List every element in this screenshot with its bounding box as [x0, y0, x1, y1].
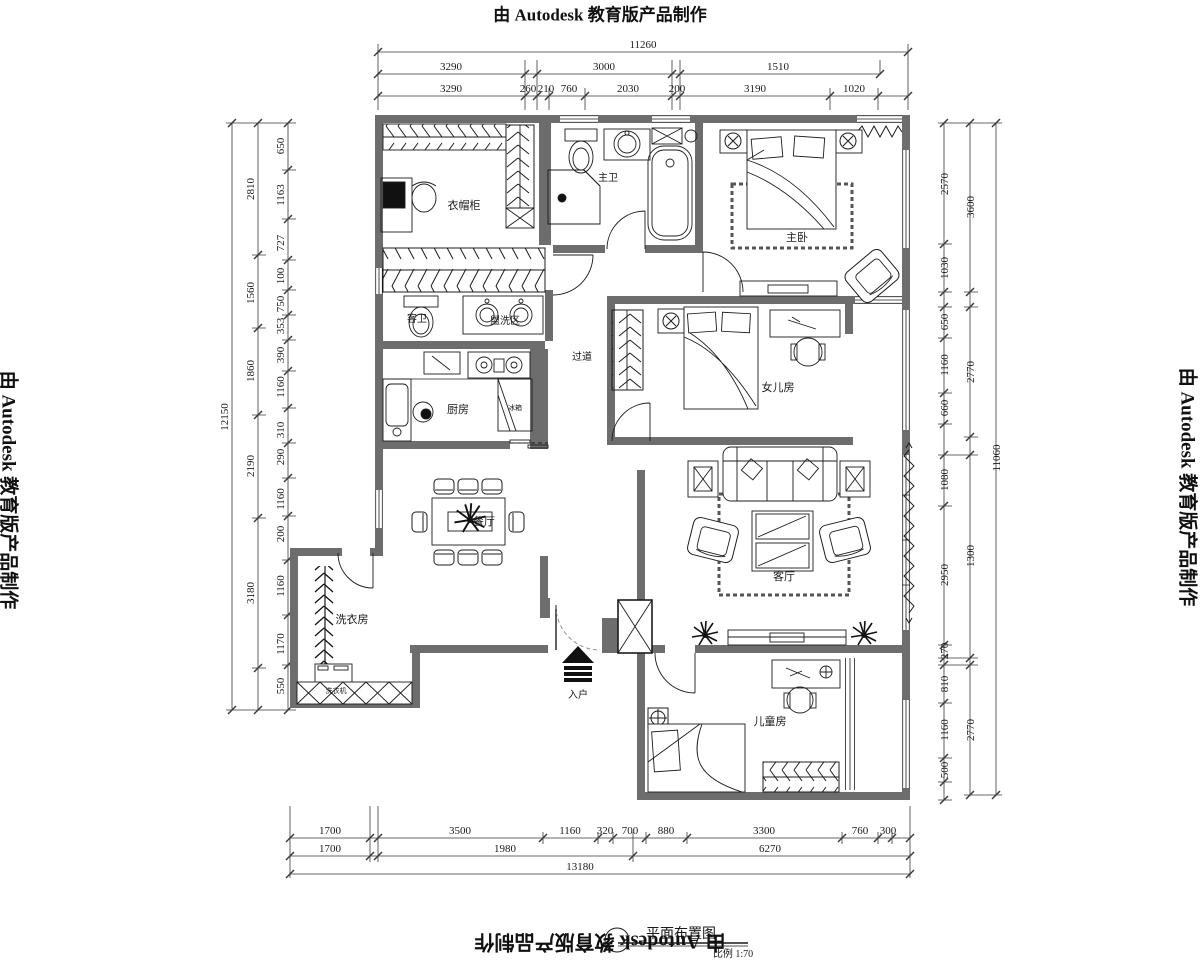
laundry-fixtures: [297, 566, 412, 704]
dim-label: 2810: [245, 178, 257, 201]
dim-label: 550: [275, 677, 287, 694]
dim-label: 650: [275, 137, 287, 154]
dimension-labels: 11260 3290 3000 1510 3290 260 210 760 20…: [219, 39, 1003, 873]
dim-label: 1980: [494, 843, 517, 855]
dim-label: 1080: [939, 469, 951, 492]
living-room-furniture: [686, 447, 877, 645]
dim-label: 100: [275, 267, 287, 284]
dim-label: 12150: [219, 403, 231, 431]
kitchen-fixtures: [383, 352, 532, 441]
corridor-label: 过道: [572, 350, 592, 363]
dim-label: 2190: [245, 455, 257, 478]
kitchen-label: 厨房: [447, 403, 469, 416]
fridge-label: 冰箱: [508, 403, 522, 412]
dim-label: 310: [275, 421, 287, 438]
dim-label: 1860: [245, 360, 257, 383]
dim-label: 750: [275, 295, 287, 312]
dim-label: 2570: [939, 173, 951, 196]
dim-label: 1160: [275, 488, 287, 510]
dim-label: 200: [669, 83, 686, 95]
dim-label: 3180: [245, 582, 257, 605]
dim-label: 270: [939, 642, 951, 659]
dim-label: 1030: [939, 257, 951, 280]
kids-room-label: 儿童房: [754, 714, 787, 728]
autodesk-watermark-bottom: 由 Autodesk 教育版产品制作: [474, 930, 725, 959]
dim-label: 290: [275, 448, 287, 465]
master-bedroom-furniture: [720, 130, 902, 305]
master-bedroom-label: 主卧: [786, 231, 808, 244]
dim-label: 210: [538, 83, 555, 95]
floor-plan-sheet: 11260 3290 3000 1510 3290 260 210 760 20…: [0, 0, 1200, 960]
dim-label: 320: [597, 825, 614, 837]
dim-label: 1020: [843, 83, 866, 95]
dim-label: 727: [275, 234, 287, 251]
dim-label: 1163: [275, 184, 287, 206]
washer-label: 洗衣机: [326, 686, 347, 695]
dim-label: 880: [658, 825, 675, 837]
dim-label: 1700: [319, 825, 342, 837]
autodesk-watermark-top: 由 Autodesk 教育版产品制作: [493, 1, 706, 26]
dim-label: 3300: [753, 825, 776, 837]
floor-plan-drawing: 11260 3290 3000 1510 3290 260 210 760 20…: [0, 0, 1200, 960]
furniture: [297, 124, 902, 792]
daughter-room-furniture: [612, 307, 840, 409]
cloakroom-label: 衣帽柜: [448, 198, 481, 212]
dim-label: 13180: [566, 861, 594, 873]
dim-label: 1160: [559, 825, 581, 837]
dim-label: 1510: [767, 61, 790, 73]
living-room-label: 客厅: [773, 569, 795, 583]
master-bath-fixtures: [548, 128, 697, 240]
dim-label: 760: [852, 825, 869, 837]
dimension-lines: [226, 44, 1002, 878]
dim-label: 390: [275, 346, 287, 363]
dim-label: 6270: [759, 843, 782, 855]
dim-label: 353: [275, 317, 287, 334]
dim-label: 1700: [319, 843, 342, 855]
dim-label: 200: [275, 525, 287, 542]
dim-label: 3000: [593, 61, 616, 73]
dim-label: 2770: [965, 361, 977, 384]
dim-label: 1560: [245, 282, 257, 305]
kids-room-furniture: [648, 660, 840, 792]
dim-label: 2030: [617, 83, 640, 95]
dim-label: 300: [880, 825, 897, 837]
entry-label: 入户: [568, 688, 588, 701]
dim-label: 3600: [965, 196, 977, 219]
dim-label: 500: [939, 761, 951, 778]
dim-label: 1160: [939, 354, 951, 376]
dim-label: 3290: [440, 83, 463, 95]
dim-label: 3190: [744, 83, 767, 95]
dim-label: 3290: [440, 61, 463, 73]
dim-label: 1160: [275, 575, 287, 597]
dim-label: 1300: [965, 545, 977, 568]
dim-label: 2950: [939, 564, 951, 587]
dim-label: 810: [939, 675, 951, 692]
dim-label: 1160: [275, 376, 287, 398]
dim-label: 1170: [275, 633, 287, 655]
dim-label: 700: [622, 825, 639, 837]
guest-bath-label: 客卫: [407, 312, 427, 325]
dim-label: 11060: [991, 444, 1003, 472]
autodesk-watermark-right: 由 Autodesk 教育版产品制作: [1176, 368, 1200, 607]
dim-label: 260: [520, 83, 537, 95]
dim-label: 3500: [449, 825, 472, 837]
dim-label: 760: [561, 83, 578, 95]
autodesk-watermark-left: 由 Autodesk 教育版产品制作: [0, 371, 24, 610]
dim-label: 11260: [629, 39, 657, 51]
daughter-room-label: 女儿房: [762, 380, 795, 394]
dim-label: 1160: [939, 719, 951, 741]
master-bath-label: 主卫: [598, 172, 618, 184]
dim-label: 650: [939, 313, 951, 330]
wash-area-label: 盥洗区: [490, 315, 520, 327]
dim-label: 660: [939, 399, 951, 416]
laundry-label: 洗衣房: [336, 612, 369, 626]
dim-label: 2770: [965, 719, 977, 742]
